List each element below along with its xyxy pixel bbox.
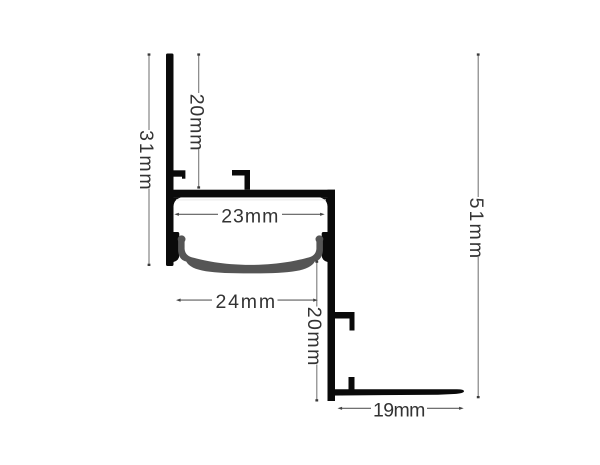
svg-text:24mm: 24mm — [216, 291, 277, 313]
svg-text:23mm: 23mm — [221, 205, 279, 227]
svg-text:51mm: 51mm — [465, 198, 487, 261]
svg-text:20mm: 20mm — [185, 94, 207, 152]
svg-text:31mm: 31mm — [135, 130, 157, 191]
svg-text:19mm: 19mm — [373, 399, 425, 421]
svg-text:20mm: 20mm — [303, 307, 325, 367]
